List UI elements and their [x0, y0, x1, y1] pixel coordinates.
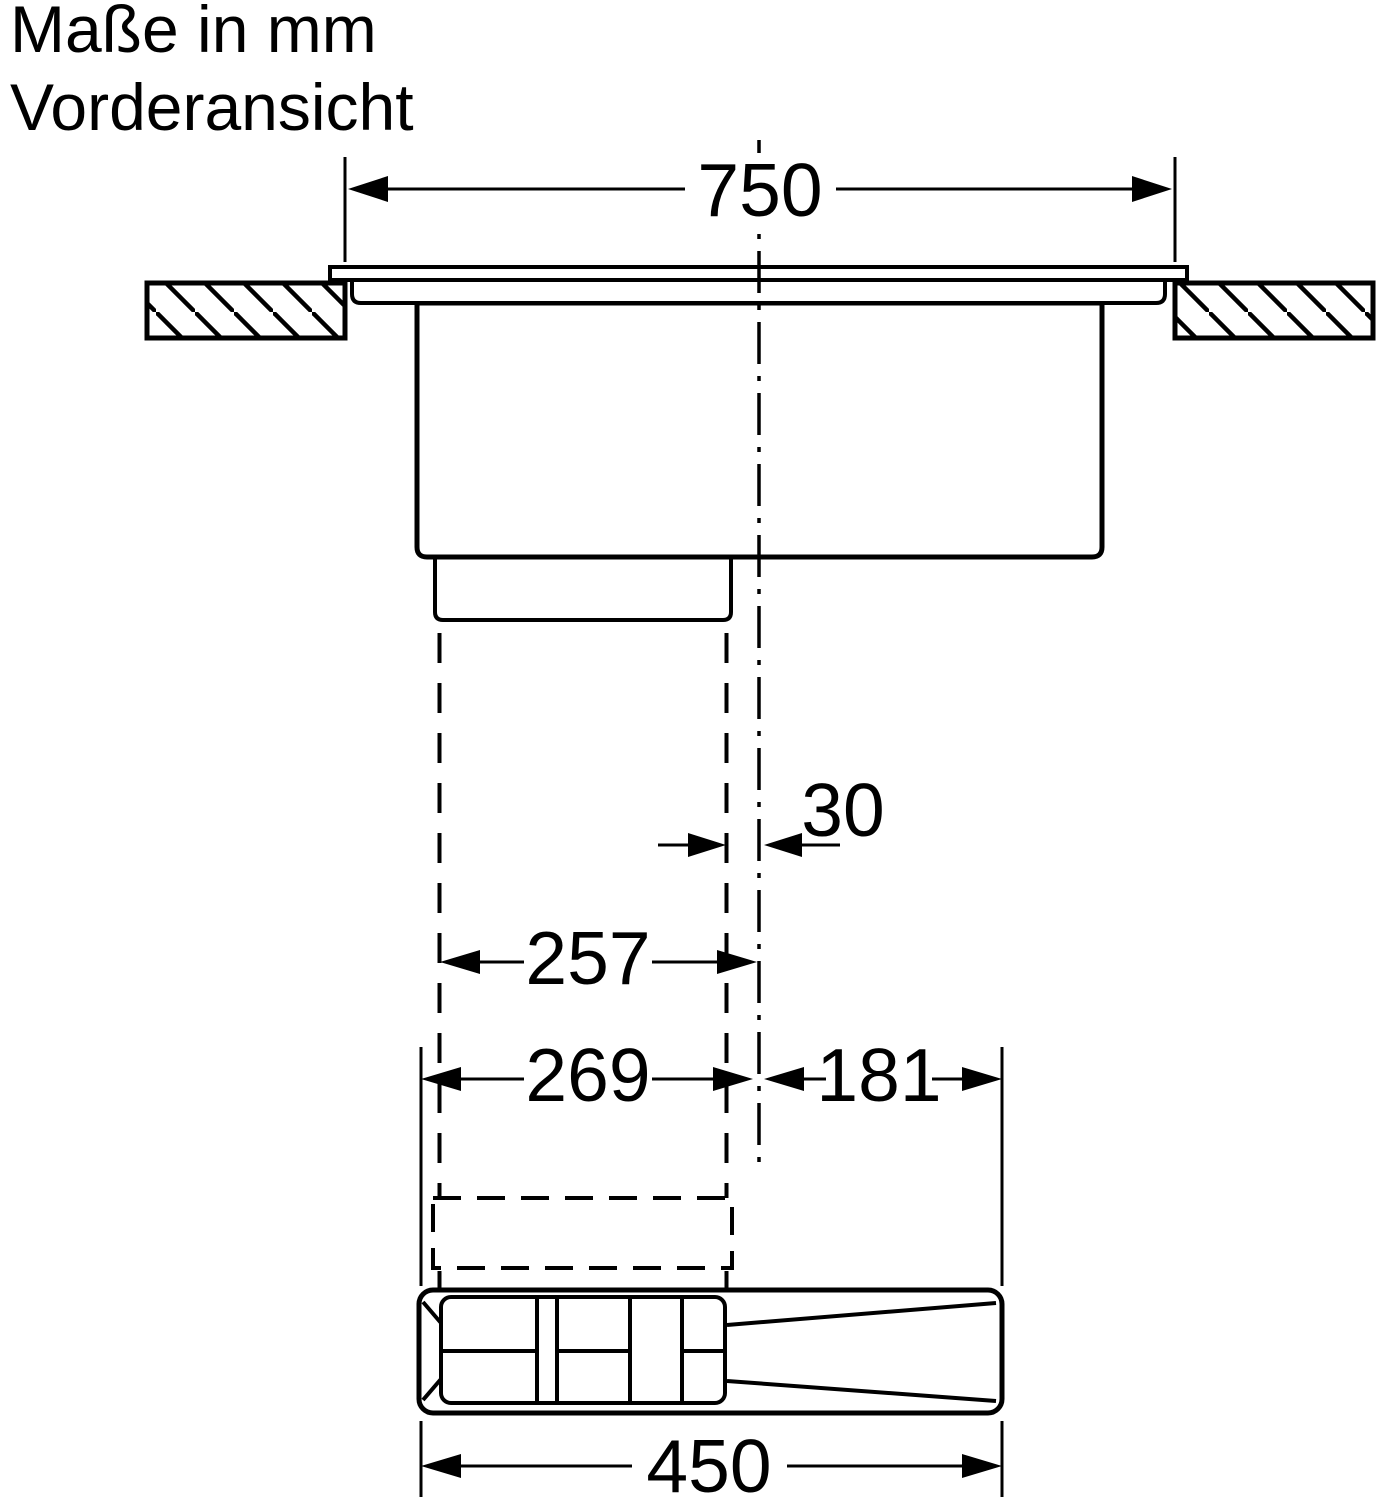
- canvas-background: [0, 0, 1378, 1500]
- dim-257-label: 257: [525, 916, 650, 1000]
- title-block: Maße in mm Vorderansicht: [10, 0, 414, 144]
- units-note: Maße in mm: [10, 0, 377, 66]
- technical-drawing: Maße in mm Vorderansicht: [0, 0, 1378, 1500]
- hob-outlet-neck: [435, 557, 731, 620]
- flat-duct-unit: [419, 1290, 1002, 1413]
- view-label: Vorderansicht: [10, 70, 414, 144]
- dim-30-label: 30: [801, 768, 884, 852]
- dim-181-label: 181: [816, 1033, 941, 1117]
- dim-750-label: 750: [697, 148, 822, 232]
- dimension-drawing-page: Maße in mm Vorderansicht: [0, 0, 1378, 1500]
- dim-269-label: 269: [525, 1033, 650, 1117]
- worktop-section-left: [147, 283, 345, 338]
- dim-450-label: 450: [646, 1424, 771, 1500]
- worktop-section-right: [1175, 283, 1373, 338]
